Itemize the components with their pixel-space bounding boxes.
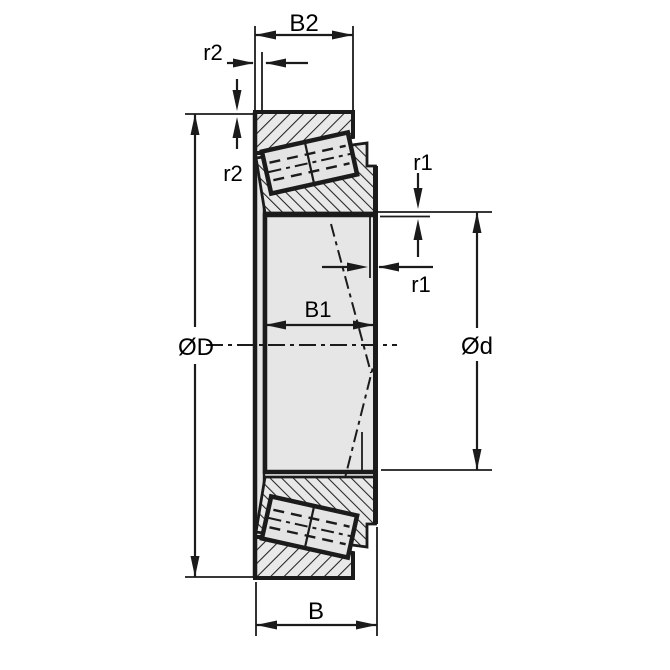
dim-label-r1-side: r1 <box>411 272 431 297</box>
dim-label-b2: B2 <box>289 10 318 37</box>
dim-label-b: B <box>308 598 324 625</box>
dim-label-bore-diameter: Ød <box>461 333 493 360</box>
dim-label-b1: B1 <box>305 297 332 322</box>
dim-label-r2-side: r2 <box>223 161 243 186</box>
inner-ring-side-view <box>265 215 376 472</box>
bearing-cross-section-svg: B2 r2 r2 r1 r1 ØD Ød B1 B <box>0 0 670 670</box>
dim-label-r1-top: r1 <box>413 150 433 175</box>
dim-label-r2-top: r2 <box>203 40 223 65</box>
bearing-drawing-canvas: B2 r2 r2 r1 r1 ØD Ød B1 B <box>0 0 670 670</box>
dim-label-outer-diameter: ØD <box>178 334 214 361</box>
